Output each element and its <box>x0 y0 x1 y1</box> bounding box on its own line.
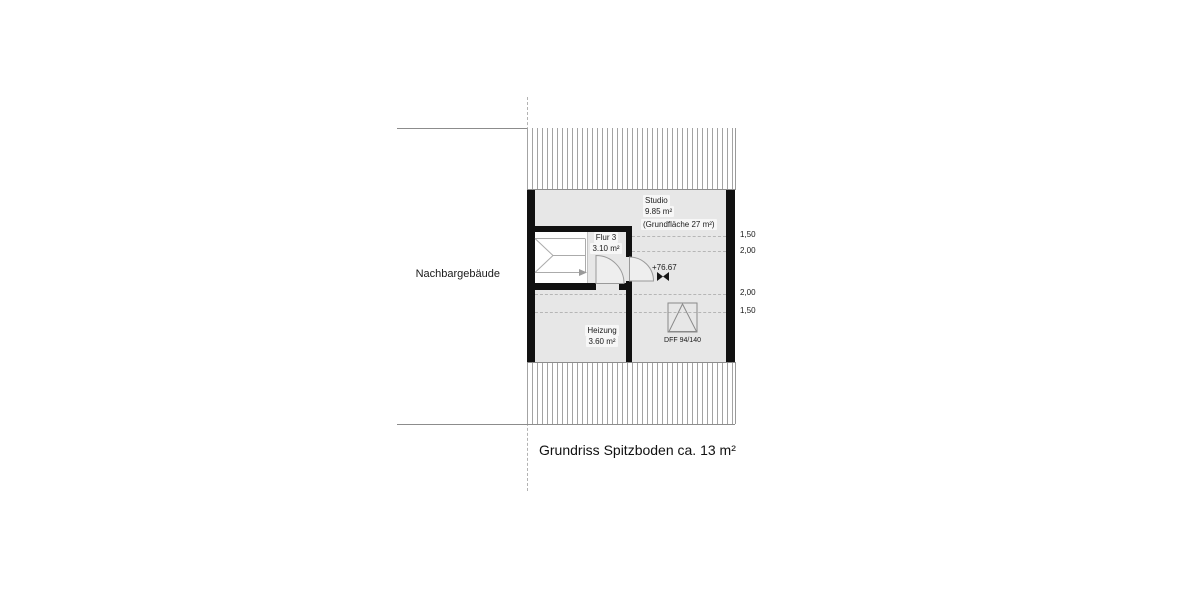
room-label-heizung: Heizung 3.60 m² <box>576 325 628 347</box>
neighbor-building-label: Nachbargebäude <box>410 268 500 281</box>
room-name-flur: Flur 3 <box>594 232 618 243</box>
wall-stair-bottom <box>527 283 596 290</box>
room-label-flur: Flur 3 3.10 m² <box>581 232 631 254</box>
headroom-line-150-top <box>632 236 726 237</box>
note-grundflaeche: (Grundfläche 27 m²) <box>641 219 717 230</box>
dim-label-200-bottom: 2,00 <box>740 288 756 298</box>
room-area-flur: 3.10 m² <box>590 243 621 254</box>
roof-window-label: DFF 94/140 <box>660 337 705 345</box>
room-area-heizung: 3.60 m² <box>586 336 617 347</box>
roof-edge-line-bottom <box>397 424 735 425</box>
level-annotation: +76.67 <box>652 263 677 272</box>
headroom-line-200-top <box>632 251 726 252</box>
room-label-studio: Studio 9.85 m² <box>643 195 674 217</box>
floor-plan-canvas: Studio 9.85 m² (Grundfläche 27 m²) Flur … <box>0 0 1200 600</box>
roof-hatch-bottom <box>527 362 736 424</box>
dim-label-150-bottom: 1,50 <box>740 306 756 316</box>
wall-right <box>726 190 735 362</box>
room-name-heizung: Heizung <box>585 325 618 336</box>
dim-label-200-top: 2,00 <box>740 246 756 256</box>
wall-left <box>527 190 535 362</box>
room-name-studio: Studio <box>643 195 670 206</box>
page-title: Grundriss Spitzboden ca. 13 m² <box>539 441 736 459</box>
roof-hatch-top <box>527 128 736 190</box>
dim-label-150-top: 1,50 <box>740 230 756 240</box>
room-area-studio: 9.85 m² <box>643 206 674 217</box>
note-grundflaeche-text: (Grundfläche 27 m²) <box>641 219 717 230</box>
wall-partition-lower <box>626 281 632 362</box>
